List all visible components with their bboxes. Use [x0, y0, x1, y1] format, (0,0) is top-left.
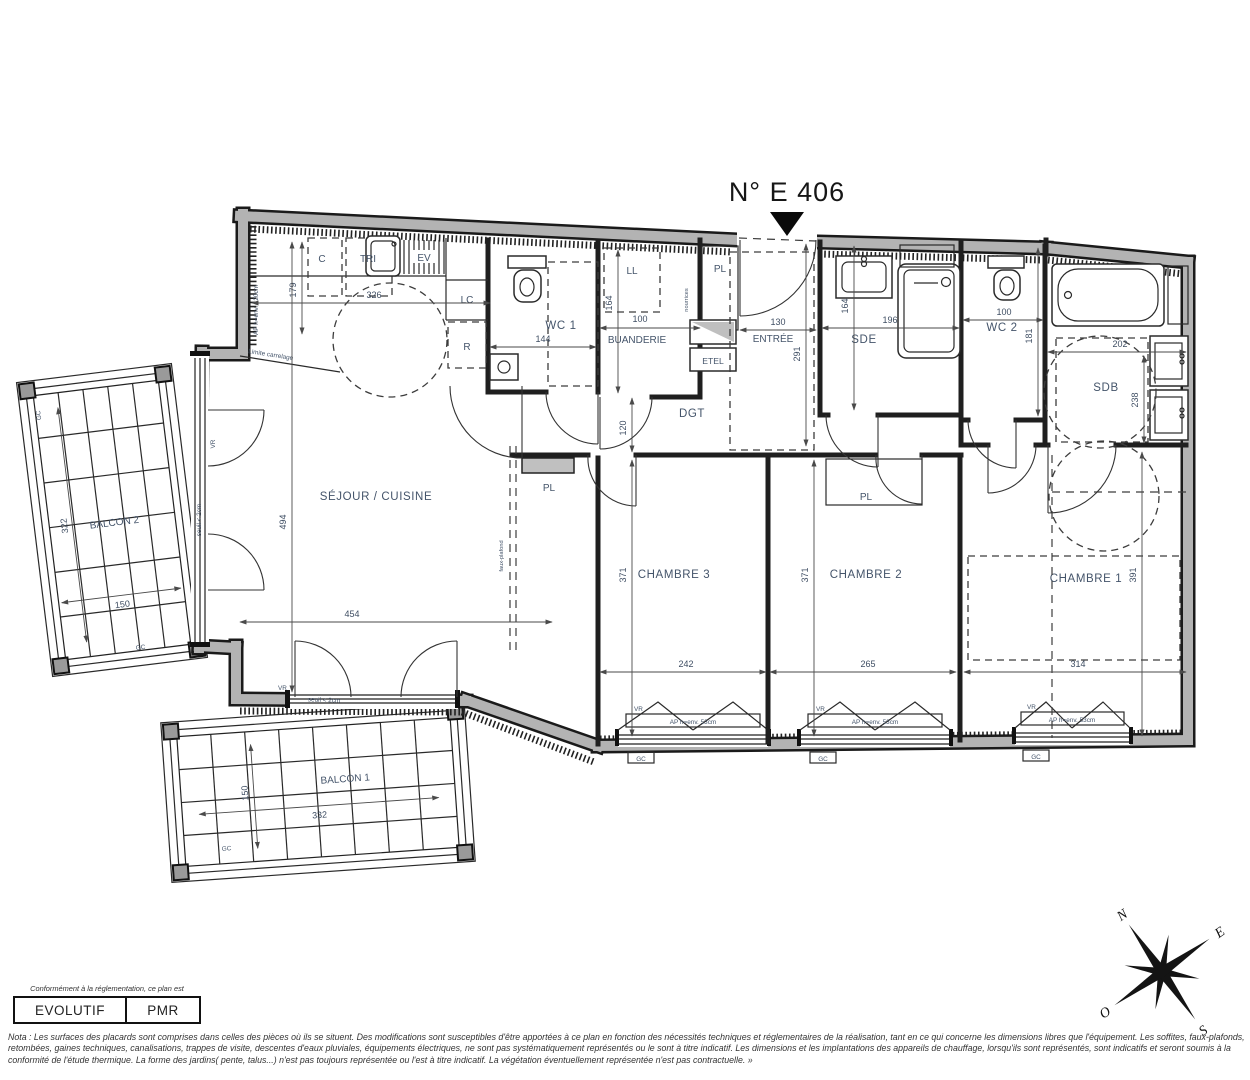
dim-kitchen-h: 179	[288, 282, 298, 297]
balcon2-gc-bottom: GC	[135, 644, 146, 652]
dgt-label: DGT	[679, 408, 705, 420]
dim-ch3-w: 242	[678, 659, 693, 669]
dim-dgt-h: 120	[618, 420, 628, 435]
plan-title: N° E 406	[729, 177, 845, 207]
wc1-label: WC 1	[545, 320, 576, 332]
balcon1-gc: GC	[222, 845, 232, 853]
balcon1-label: BALCON 1	[320, 772, 371, 786]
seuil-balcon1-label: seuil < 2cm	[308, 696, 341, 704]
wc1-fixtures: WC 1	[490, 256, 598, 386]
pl-entree-label: PL	[714, 264, 727, 275]
faux-plafond-label: faux-plafond	[499, 540, 505, 571]
balcon2-dim-w: 150	[114, 598, 130, 610]
ll-label: LL	[626, 266, 638, 277]
chambre1-window: AP h=env. 53cm VR GC	[1012, 702, 1133, 761]
sdb-label: SDB	[1093, 382, 1118, 394]
chambre1-label: CHAMBRE 1	[1050, 573, 1123, 585]
legend-evolutif: EVOLUTIF	[35, 1003, 105, 1018]
doors	[208, 240, 1116, 697]
dim-sdb-w: 202	[1112, 339, 1127, 349]
nourrices-label: nourrices	[684, 288, 690, 312]
buanderie-label: BUANDERIE	[608, 335, 667, 346]
sejour-label: SÉJOUR / CUISINE	[320, 490, 432, 503]
pl-chambre2-label: PL	[860, 492, 873, 503]
dim-sdb-h: 238	[1130, 392, 1140, 407]
legend-pmr: PMR	[147, 1003, 179, 1018]
legend-intro: Conformément à la réglementation, ce pla…	[30, 984, 185, 993]
vr-balcon1-label: VR	[278, 685, 287, 692]
dim-sejour-w: 454	[344, 609, 359, 619]
tri-label: TRI	[360, 254, 376, 265]
dim-ch1-w: 314	[1070, 659, 1085, 669]
limite-carrelage-label: Limite carrelage	[248, 348, 294, 362]
gc-label-ch2: GC	[818, 756, 828, 763]
balcon1-dim-w: 332	[312, 809, 328, 820]
sde-label: SDE	[851, 334, 876, 346]
balcon2-dim-h: 322	[58, 518, 70, 534]
sdb-fixtures: SDB	[1044, 264, 1188, 448]
chambre2-label: CHAMBRE 2	[830, 569, 903, 581]
chambre3-label: CHAMBRE 3	[638, 569, 711, 581]
dim-ch2-h: 371	[800, 567, 810, 582]
entree-label: ENTRÉE	[753, 332, 794, 345]
seuil-balcon2-label: seuil < 2cm	[196, 504, 203, 537]
c-label: C	[318, 254, 325, 265]
balcon2-gc-top: GC	[35, 410, 43, 421]
wc2-label: WC 2	[986, 322, 1017, 334]
dim-ch2-w: 265	[860, 659, 875, 669]
balcony-1: BALCON 1 150 332 GC	[161, 702, 475, 883]
vr-label-ch2: VR	[816, 706, 825, 713]
dim-wc2-h: 181	[1024, 328, 1034, 343]
chambre3-window: AP h=env. 53cm VR GC	[615, 702, 771, 763]
vr-label-ch1: VR	[1027, 704, 1036, 711]
ap53-label-ch3: AP h=env. 53cm	[670, 719, 716, 726]
dim-wc2-w: 100	[996, 307, 1011, 317]
pl-sejour-label: PL	[543, 483, 556, 494]
dim-entree-h: 291	[792, 346, 802, 361]
buanderie-fixtures: LL BUANDERIE nourrices PL ETEL	[604, 246, 738, 371]
r-label: R	[463, 342, 470, 353]
ap53-label-ch1: AP h=env. 53cm	[1049, 717, 1095, 724]
balcon1-dim-h: 150	[239, 785, 250, 801]
lc-label: LC	[461, 295, 474, 306]
dim-entree-w: 130	[770, 317, 785, 327]
legend: Conformément à la réglementation, ce pla…	[14, 984, 200, 1023]
dim-buanderie-w: 100	[632, 314, 647, 324]
gc-label-ch1: GC	[1031, 754, 1041, 761]
chambres: CHAMBRE 3 CHAMBRE 2 CHAMBRE 1 PL	[638, 441, 1186, 738]
compass-o: O	[1097, 1004, 1114, 1022]
chambre2-window: AP h=env. 53cm VR GC	[797, 702, 953, 763]
nota-text: Nota : Les surfaces des placards sont co…	[8, 1032, 1246, 1066]
dim-ch3-h: 371	[618, 567, 628, 582]
wc2-fixtures: WC 2	[986, 256, 1024, 334]
vr-label-ch3: VR	[634, 706, 643, 713]
etel-label: ETEL	[702, 356, 724, 366]
balcon2-label: BALCON 2	[89, 515, 140, 532]
dim-ch1-h: 391	[1128, 567, 1138, 582]
sde-fixtures: SDE	[836, 245, 960, 358]
ev-label: EV	[417, 253, 431, 264]
sejour-area: SÉJOUR / CUISINE faux-plafond PL VR seui…	[196, 439, 574, 704]
dim-buanderie-h: 164	[604, 295, 614, 310]
ap120-label: AP h=env. 120cm	[253, 285, 260, 335]
compass-n: N	[1114, 907, 1132, 926]
dim-kitchen-w: 326	[366, 290, 381, 300]
balcony-2: BALCON 2 322 150 GC GC	[17, 364, 208, 677]
compass-e: E	[1212, 924, 1229, 942]
gc-label-ch3: GC	[636, 756, 646, 763]
floor-plan-svg: BALCON 2 322 150 GC GC	[0, 0, 1250, 1080]
dim-sde-w: 196	[882, 315, 897, 325]
vr-balcon2-label: VR	[210, 439, 217, 448]
dim-sejour-h: 494	[278, 514, 288, 529]
dim-sde-h: 164	[840, 298, 850, 313]
ap53-label-ch2: AP h=env. 53cm	[852, 719, 898, 726]
floor-plan-page: BALCON 2 322 150 GC GC	[0, 0, 1250, 1080]
dim-wc1-w: 144	[535, 334, 550, 344]
kitchen-fixtures: EV C TRI LC R Limite carrelage AP h=env.…	[240, 236, 488, 397]
